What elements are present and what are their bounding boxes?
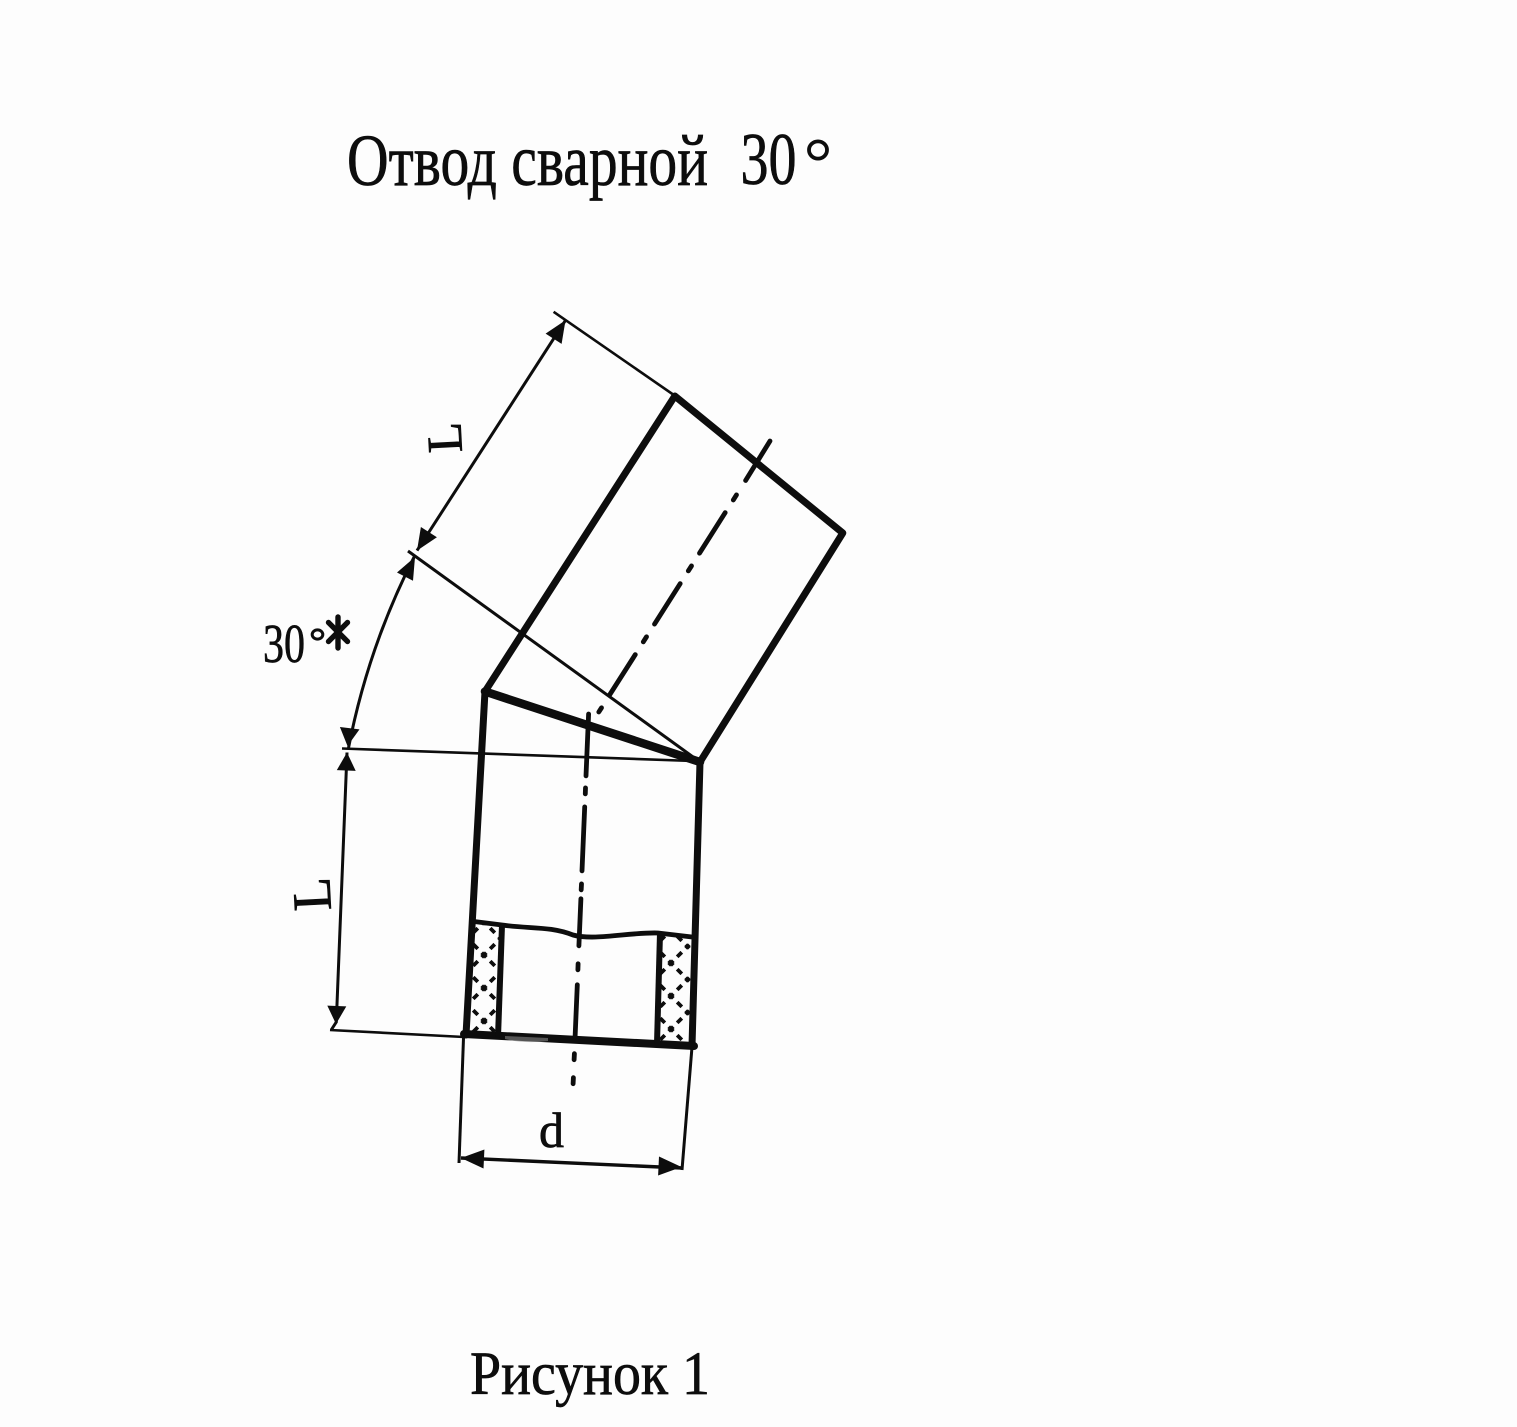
svg-text:L: L bbox=[280, 876, 343, 913]
svg-text:d: d bbox=[539, 1102, 564, 1158]
svg-text:Отвод сварной: Отвод сварной bbox=[347, 120, 708, 201]
svg-text:30: 30 bbox=[741, 119, 797, 201]
svg-text:L: L bbox=[415, 421, 473, 454]
svg-text:30: 30 bbox=[263, 613, 305, 674]
svg-text:Рисунок 1: Рисунок 1 bbox=[470, 1341, 710, 1408]
